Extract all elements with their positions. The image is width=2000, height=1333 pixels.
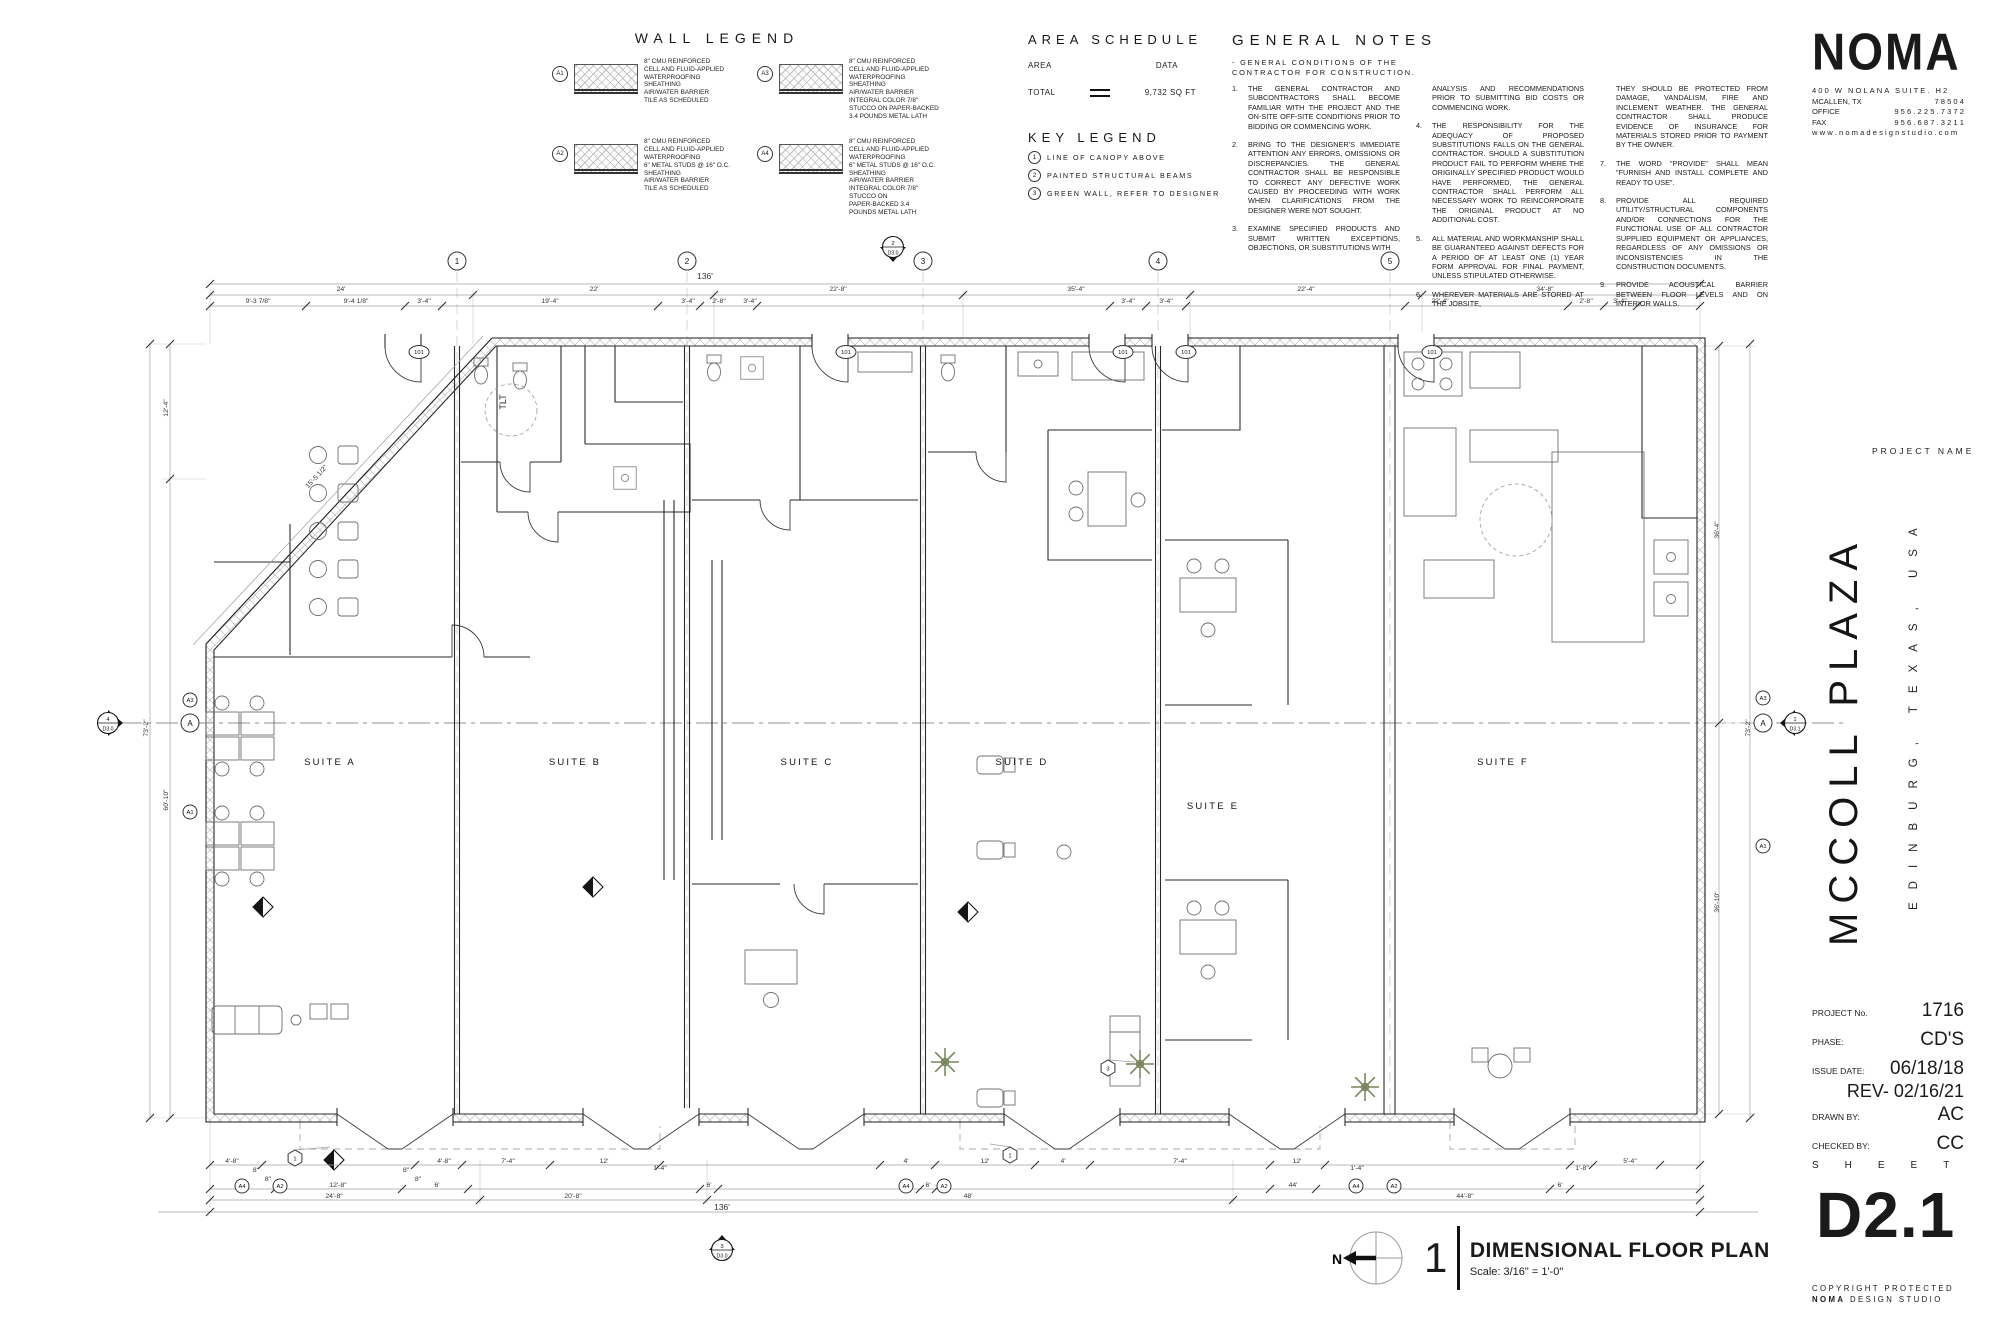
wall-type-tag-label: A4 [902,1184,910,1190]
total-value: 9,732 SQ FT [1145,88,1196,97]
north-arrow: N [1322,1222,1414,1294]
wall-type-bubble: A4 [757,146,773,162]
building-shell [206,338,1705,1122]
wall-type-tag-label: A2 [1390,1184,1397,1190]
section-marker-sheet: D3.0 [888,251,899,257]
wall-type-tag-label: A3 [186,698,193,704]
note-item: 1. THE GENERAL CONTRACTOR AND SUBCONTRAC… [1232,84,1400,131]
dimension-label: 20'-8" [564,1193,582,1200]
firm-address-line1: 400 W NOLANA SUITE. H2 [1812,86,1964,97]
north-arrow-head [1343,1251,1356,1265]
title-divider [1457,1226,1460,1290]
drawing-title: DIMENSIONAL FLOOR PLAN [1470,1239,1770,1263]
door-tag-label: 101 [841,350,851,356]
general-notes-intro: - GENERAL CONDITIONS OF THE CONTRACTOR F… [1232,58,1788,78]
dimension-label: 3'-4" [743,298,757,305]
green-wall-plants [295,1048,1379,1150]
dimension-label: 48' [964,1193,973,1200]
notes-column-1: 1. THE GENERAL CONTRACTOR AND SUBCONTRAC… [1232,84,1400,318]
equals-symbol [1090,89,1110,97]
note-item: 5. ALL MATERIAL AND WORKMANSHIP SHALL BE… [1416,234,1584,281]
section-marker-sheet: D3.1 [1790,727,1801,733]
project-info: PROJECT No. 1716 PHASE: CD'S ISSUE DATE:… [1812,1000,1964,1162]
wall-legend-item: A1 8" CMU REINFORCED CELL AND FLUID-APPL… [552,58,757,120]
dimension-label: 22'-8" [829,286,847,293]
dimension-label: 6' [706,1182,711,1189]
firm-fax-phone: 9 5 6 . 6 8 7 . 3 2 1 1 [1894,118,1964,129]
keynote-label: 3 [1106,1066,1109,1072]
wall-type-bubble: A1 [552,66,568,82]
project-info-row: CHECKED BY: CC [1812,1133,1964,1155]
dimension-label: 3'-4" [1121,298,1135,305]
keynote-text: PAINTED STRUCTURAL BEAMS [1047,171,1193,180]
dimension-label: 5'-4" [1623,1158,1637,1165]
wall-section-swatch [574,144,638,174]
drawing-title-block: N 1 DIMENSIONAL FLOOR PLAN Scale: 3/16" … [1322,1222,1770,1294]
grid-bubble-label: 3 [921,257,926,266]
dimension-label: 3'-4" [681,298,695,305]
wall-section-swatch [779,64,843,94]
dimension-label: 12'-8" [329,1182,347,1189]
door-tag-label: 101 [414,350,424,356]
data-col-header: DATA [1156,61,1178,70]
project-info-row: PHASE: CD'S [1812,1029,1964,1051]
dimension-label: 7'-4" [501,1158,515,1165]
section-marker-sheet: D3.0 [103,727,114,733]
dimension-label: 9'-3 7/8" [246,298,271,305]
north-letter: N [1332,1251,1342,1267]
keynote-number-bubble: 3 [1028,187,1041,200]
wall-type-tag-label: A1 [1759,844,1766,850]
dimension-label: 1'-4" [1350,1165,1364,1172]
drawing-number: 1 [1424,1234,1447,1282]
room-label: TLT [498,394,508,410]
area-schedule-title: AREA SCHEDULE [1028,32,1196,47]
door-tag-label: 101 [1118,350,1128,356]
firm-fax-label: FAX [1812,118,1826,129]
wall-type-tag-label: A4 [1352,1184,1360,1190]
section-marker-number: 1 [1793,717,1796,723]
project-info-row: ISSUE DATE: 06/18/18 [1812,1058,1964,1080]
dimension-label: 2'-8" [712,298,726,305]
dimension-label: 3'-4" [1159,298,1173,305]
note-item: 8. PROVIDE ALL REQUIRED UTILITY/STRUCTUR… [1600,196,1768,271]
suite-a-interior [206,346,690,1034]
interior-elevation-markers [253,877,978,1170]
dimension-label: 8" [253,1167,260,1174]
wall-section-swatch [574,64,638,94]
firm-website: w w w . n o m a d e s i g n s t u d i o … [1812,128,1964,139]
project-info-row: DRAWN BY: AC [1812,1104,1964,1126]
general-notes-title: GENERAL NOTES [1232,32,1788,49]
wall-legend-item: A2 8" CMU REINFORCED CELL AND FLUID-APPL… [552,138,757,216]
wall-type-tag-label: A1 [186,810,193,816]
wall-type-bubble: A2 [552,146,568,162]
note-item: 3. EXAMINE SPECIFIED PRODUCTS AND SUBMIT… [1232,224,1400,252]
note-item: 7. THE WORD "PROVIDE" SHALL MEAN "FURNIS… [1600,159,1768,187]
dimension-label: 4'-8" [437,1158,451,1165]
grid-bubble-label: A [1760,719,1766,728]
wall-legend-item: A4 8" CMU REINFORCED CELL AND FLUID-APPL… [757,138,972,216]
key-legend-title: KEY LEGEND [1028,130,1228,145]
key-legend-item: 1 LINE OF CANOPY ABOVE [1028,151,1228,164]
dimension-label: 73'-2" [143,719,150,737]
suite-b-interior [461,346,683,880]
suite-label: SUITE B [549,757,601,768]
sheet-number: D2.1 [1816,1178,1955,1252]
wall-legend-text: 8" CMU REINFORCED CELL AND FLUID-APPLIED… [849,138,935,216]
suite-label: SUITE F [1477,757,1529,768]
grid-bubble-label: A [187,719,193,728]
wall-type-bubble: A3 [757,66,773,82]
note-item: 9. PROVIDE ACOUSTICAL BARRIER BETWEEN FL… [1600,280,1768,308]
wall-type-tag-label: A4 [238,1184,246,1190]
dimension-label: 6' [1557,1182,1562,1189]
key-legend-item: 3 GREEN WALL, REFER TO DESIGNER [1028,187,1228,200]
wall-legend-text: 8" CMU REINFORCED CELL AND FLUID-APPLIED… [644,138,730,193]
wall-legend-title: WALL LEGEND [552,30,882,46]
section-marker-number: 2 [891,241,894,247]
suite-label: SUITE C [781,757,834,768]
dimension-label: 12' [981,1158,990,1165]
keynote-text: LINE OF CANOPY ABOVE [1047,153,1166,162]
key-legend: KEY LEGEND 1 LINE OF CANOPY ABOVE 2 PAIN… [1028,130,1228,200]
dimension-label: 4'-8" [225,1158,239,1165]
door-tag-label: 101 [1427,350,1437,356]
demising-walls [455,346,1396,1114]
dimension-label: 12' [1293,1158,1302,1165]
dimension-label: 136' [697,271,713,281]
dimension-label: 8" [415,1176,422,1183]
dimension-label: 4' [903,1158,908,1165]
project-location: EDINBURG, TEXAS, USA [1908,480,1920,910]
dimension-label: 15'-5 1/2" [305,464,330,490]
dimension-label: 136' [714,1202,730,1212]
keynote-number-bubble: 1 [1028,151,1041,164]
project-name: MCCOLL PLAZA [1822,468,1867,946]
dimension-label: 44'-8" [1456,1193,1474,1200]
wall-legend-text: 8" CMU REINFORCED CELL AND FLUID-APPLIED… [644,58,724,105]
note-item: 2. BRING TO THE DESIGNER'S IMMEDIATE ATT… [1232,140,1400,215]
wall-legend-item: A3 8" CMU REINFORCED CELL AND FLUID-APPL… [757,58,972,120]
suite-label: SUITE A [304,757,356,768]
project-name-label: PROJECT NAME [1872,446,1974,456]
grid-bubble-label: 4 [1156,257,1161,266]
extension-lines [144,288,1756,1208]
dimension-label: 6' [434,1182,439,1189]
firm-zip: 7 8 5 0 4 [1934,97,1964,108]
dimension-label: 4' [1060,1158,1065,1165]
suite-label: SUITE D [996,757,1049,768]
revision-date: REV- 02/16/21 [1812,1081,1964,1102]
note-item: ANALYSIS AND RECOMMENDATIONS PRIOR TO SU… [1416,84,1584,112]
area-schedule: AREA SCHEDULE AREA DATA TOTAL 9,732 SQ F… [1028,32,1196,97]
dimension-label: 35'-4" [1067,286,1085,293]
firm-logo-block: NOMA 400 W NOLANA SUITE. H2 MCALLEN, TX … [1812,26,1968,139]
dimension-label: 36'-4" [1714,521,1721,539]
suite-c-interior [692,346,918,1008]
dimension-line [193,336,483,645]
note-item: 4. THE RESPONSIBILITY FOR THE ADEQUACY O… [1416,121,1584,224]
dimension-label: 1'-8" [1575,1165,1589,1172]
dimension-label: 24' [337,286,346,293]
sheet-label: SHEET [1812,1160,1975,1171]
project-info-row: PROJECT No. 1716 [1812,1000,1964,1022]
firm-office-phone: 9 5 6 . 2 2 5 . 7 3 7 2 [1894,107,1964,118]
dimension-label: 19'-4" [541,298,559,305]
dimension-label: 1'-4" [653,1165,667,1172]
suite-f-interior [1404,346,1697,1078]
dimension-label: 44' [1289,1182,1298,1189]
copyright-line1: COPYRIGHT PROTECTED [1812,1283,1954,1294]
section-marker-sheet: D3.0 [717,1254,728,1260]
notes-column-3: THEY SHOULD BE PROTECTED FROM DAMAGE, VA… [1600,84,1768,318]
wall-legend: WALL LEGEND A1 8" CMU REINFORCED CELL AN… [552,30,1002,216]
dimension-label: 24'-8" [325,1193,343,1200]
wall-type-tag-label: A2 [276,1184,283,1190]
firm-office-label: OFFICE [1812,107,1840,118]
dimension-label: 22' [590,286,599,293]
wall-legend-text: 8" CMU REINFORCED CELL AND FLUID-APPLIED… [849,58,939,120]
grid-lines [120,272,1848,1114]
area-col-header: AREA [1028,61,1052,70]
copyright-line2: NOMA DESIGN STUDIO [1812,1294,1954,1305]
wall-type-tag-label: A3 [1759,696,1766,702]
wall-type-tag-label: A2 [940,1184,947,1190]
dimension-label: 6' [925,1182,930,1189]
canopy-lines [300,1122,1575,1149]
plan-annotations: 136'24'22'22'-8"35'-4"22'-4"34'-8"9'-3 7… [98,237,1806,1261]
key-legend-item: 2 PAINTED STRUCTURAL BEAMS [1028,169,1228,182]
dimension-label: 7'-4" [1173,1158,1187,1165]
suite-label: SUITE E [1187,801,1239,812]
keynote-number-bubble: 2 [1028,169,1041,182]
noma-logo: NOMA [1812,26,1968,78]
note-item: THEY SHOULD BE PROTECTED FROM DAMAGE, VA… [1600,84,1768,150]
keynote-text: GREEN WALL, REFER TO DESIGNER [1047,189,1220,198]
dimension-label: 60'-10" [163,789,170,811]
dimension-label: 12'-4" [163,399,170,417]
grid-bubble-label: 1 [455,257,460,266]
grid-bubble-label: 2 [685,257,690,266]
general-notes: GENERAL NOTES - GENERAL CONDITIONS OF TH… [1232,32,1788,318]
suite-e-interior [1162,346,1288,1040]
note-item: 6. WHEREVER MATERIALS ARE STORED AT THE … [1416,290,1584,309]
drawing-scale: Scale: 3/16" = 1'-0" [1470,1266,1770,1278]
keynote-label: 1 [293,1156,296,1162]
total-label: TOTAL [1028,88,1056,97]
dimension-label: 12' [600,1158,609,1165]
dimension-label: 9'-4 1/8" [344,298,369,305]
copyright: COPYRIGHT PROTECTED NOMA DESIGN STUDIO [1812,1283,1954,1305]
door-tag-label: 101 [1181,350,1191,356]
dimension-label: 36'-10" [1714,891,1721,913]
dimension-label: 3'-4" [417,298,431,305]
dimension-label: 73'-2" [1745,719,1752,737]
suite-d-interior [928,346,1152,1107]
keynote-label: 1 [1008,1153,1011,1159]
dimension-label: 8" [403,1167,410,1174]
section-marker-number: 3 [720,1244,723,1250]
firm-city: MCALLEN, TX [1812,97,1862,108]
dimension-label: 8" [265,1176,272,1183]
wall-section-swatch [779,144,843,174]
notes-column-2: ANALYSIS AND RECOMMENDATIONS PRIOR TO SU… [1416,84,1584,318]
